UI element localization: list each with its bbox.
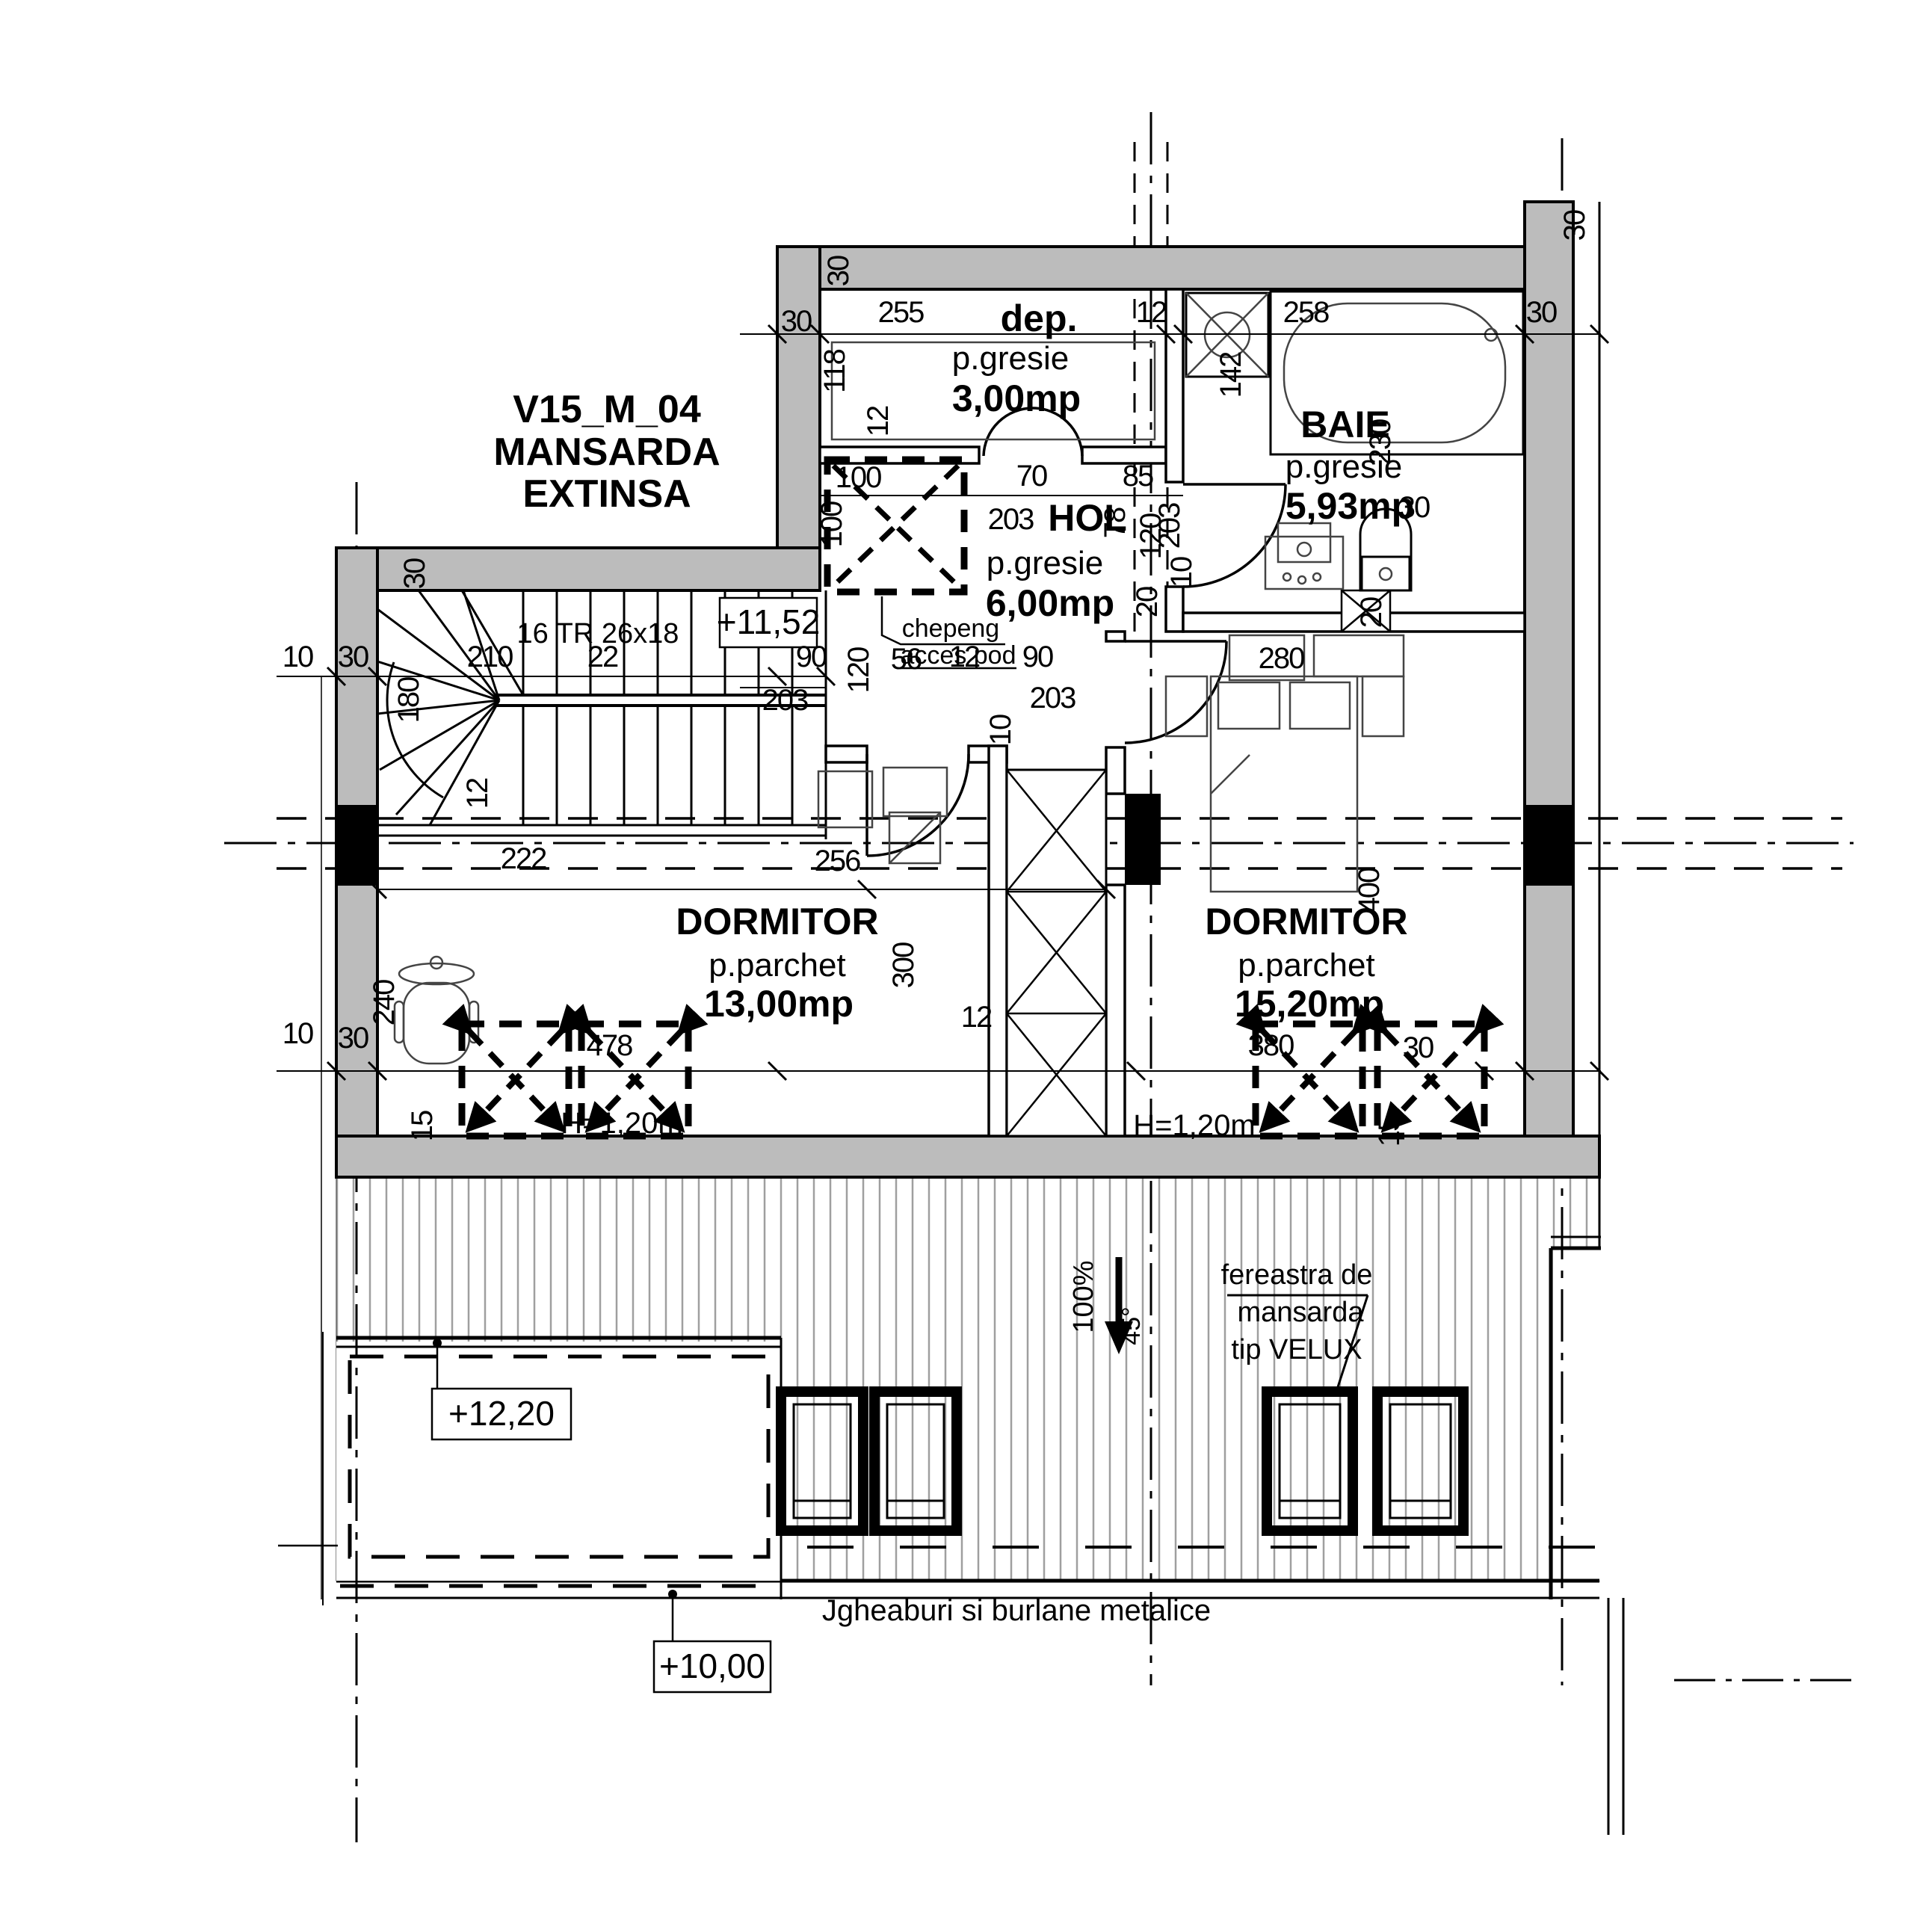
dimension-label: 78: [1099, 507, 1132, 538]
slope-angle-label: 45°: [1117, 1306, 1146, 1345]
bed: [1211, 676, 1357, 892]
dimension-label: 30: [338, 641, 368, 673]
dimension-label: 280: [1259, 642, 1304, 675]
nightstand: [1166, 676, 1207, 736]
terrace-flat-roof: [323, 1332, 781, 1605]
dimension-label: 203: [762, 684, 808, 717]
nightstand: [1362, 676, 1404, 736]
room-name-dormitor1: DORMITOR: [676, 901, 878, 942]
room-finish-hol: p.gresie: [987, 545, 1104, 581]
dimension-label: 100: [815, 501, 848, 547]
dimension-label: 12: [949, 641, 980, 673]
floor-plan-drawing: V15_M_04 MANSARDA EXTINSA dep. p.gresie …: [0, 0, 1932, 1932]
room-finish-dep: p.gresie: [952, 340, 1070, 377]
room-finish-dormitor2: p.parchet: [1238, 947, 1374, 984]
room-finish-dormitor1: p.parchet: [709, 947, 845, 984]
room-area-baie: 5,93mp: [1286, 485, 1414, 527]
dimension-label: 15: [406, 1111, 439, 1141]
dimension-label: 30: [1558, 210, 1591, 241]
room-name-dep: dep.: [1001, 297, 1078, 339]
velux-annotation-line1: fereastra de: [1221, 1259, 1373, 1291]
dimension-label: 10: [984, 715, 1017, 745]
gutter-annotation: Jgheaburi si burlane metalice: [822, 1594, 1211, 1627]
drawing-title-line3: EXTINSA: [522, 472, 691, 516]
dimension-label: 12: [461, 778, 494, 809]
dimension-label: 20: [1355, 597, 1388, 628]
dimension-label: 120: [842, 647, 875, 693]
dimension-label: 222: [501, 842, 546, 875]
velux-annotation-line2: mansarda: [1238, 1297, 1365, 1328]
level-eaves: +10,00: [659, 1646, 765, 1685]
height-zone-label: H=1,20m: [561, 1107, 682, 1140]
dimension-label: 56: [891, 643, 922, 676]
room-area-dormitor1: 13,00mp: [704, 983, 854, 1025]
column: [1525, 805, 1573, 886]
dimension-label: 30: [1399, 491, 1430, 524]
column: [336, 805, 377, 886]
dimension-label: 258: [1283, 296, 1329, 329]
dimension-label: 256: [815, 845, 860, 877]
room-area-hol: 6,00mp: [986, 582, 1114, 624]
bottom-wall: [336, 1136, 1599, 1177]
dimension-label: 230: [1364, 419, 1397, 465]
top-wall: [777, 247, 1525, 289]
level-terrace: +12,20: [448, 1394, 555, 1433]
armchair: [395, 957, 478, 1064]
dimension-label: 12: [862, 406, 895, 436]
height-zone-label: H=1,20m: [1133, 1109, 1255, 1142]
room-area-dormitor2: 15,20mp: [1235, 983, 1384, 1025]
step-wall: [777, 247, 820, 590]
dimension-label: 15: [1373, 1116, 1406, 1146]
dimension-label: 30: [398, 558, 431, 589]
sink: [1265, 523, 1343, 589]
drawing-title-line2: MANSARDA: [493, 430, 720, 474]
floor-plan-sheet: V15_M_04 MANSARDA EXTINSA dep. p.gresie …: [0, 0, 1932, 1932]
drawing-title-line1: V15_M_04: [513, 388, 701, 431]
dimension-label: 30: [338, 1022, 368, 1055]
velux-annotation-line3: tip VELUX: [1231, 1334, 1362, 1365]
dimension-label: 142: [1215, 352, 1247, 398]
dimension-label: 90: [796, 641, 827, 673]
dimension-label: 203: [1030, 682, 1075, 715]
dimension-label: 255: [878, 296, 924, 329]
dimension-label: 380: [1248, 1029, 1294, 1062]
dimension-label: 10: [1165, 557, 1198, 587]
dimension-label: 10: [283, 641, 313, 673]
bath-door-arc: [1183, 484, 1286, 587]
dimension-label: 180: [392, 677, 425, 723]
dimension-label: 12: [1136, 296, 1167, 329]
dimension-label: 30: [822, 256, 855, 286]
room-area-dep: 3,00mp: [952, 377, 1081, 419]
dimension-label: 10: [283, 1017, 313, 1050]
dimension-label: 210: [467, 641, 513, 673]
dimension-label: 22: [587, 641, 618, 673]
dimension-label: 90: [1022, 641, 1053, 673]
dimension-label: 100: [836, 461, 881, 494]
bedroom1-door-arc: [867, 754, 969, 856]
dimension-label: 203: [988, 503, 1034, 536]
dimension-label: 300: [887, 942, 920, 988]
level-hall: +11,52: [717, 602, 821, 641]
dimension-label: 85: [1123, 460, 1153, 493]
dimension-label: 30: [1403, 1031, 1433, 1064]
dimension-label: 20: [1131, 587, 1164, 617]
dimension-label: 203: [1153, 503, 1186, 549]
dimension-label: 478: [587, 1029, 632, 1062]
dimension-label: 400: [1353, 868, 1386, 913]
interior-partitions: [820, 289, 1525, 1136]
right-party-wall: [1525, 202, 1573, 1166]
column: [1125, 794, 1161, 885]
dimension-label: 30: [1526, 296, 1557, 329]
dimension-label: 12: [961, 1001, 992, 1034]
dimension-label: 70: [1016, 460, 1047, 493]
slope-percent-label: 100%: [1068, 1260, 1099, 1333]
dimension-label: 30: [781, 305, 812, 338]
dimension-label: 118: [818, 349, 851, 393]
left-wing-top-wall: [377, 548, 820, 590]
dimension-label: 240: [368, 980, 401, 1025]
hatch-annotation-line1: chepeng: [902, 614, 999, 643]
